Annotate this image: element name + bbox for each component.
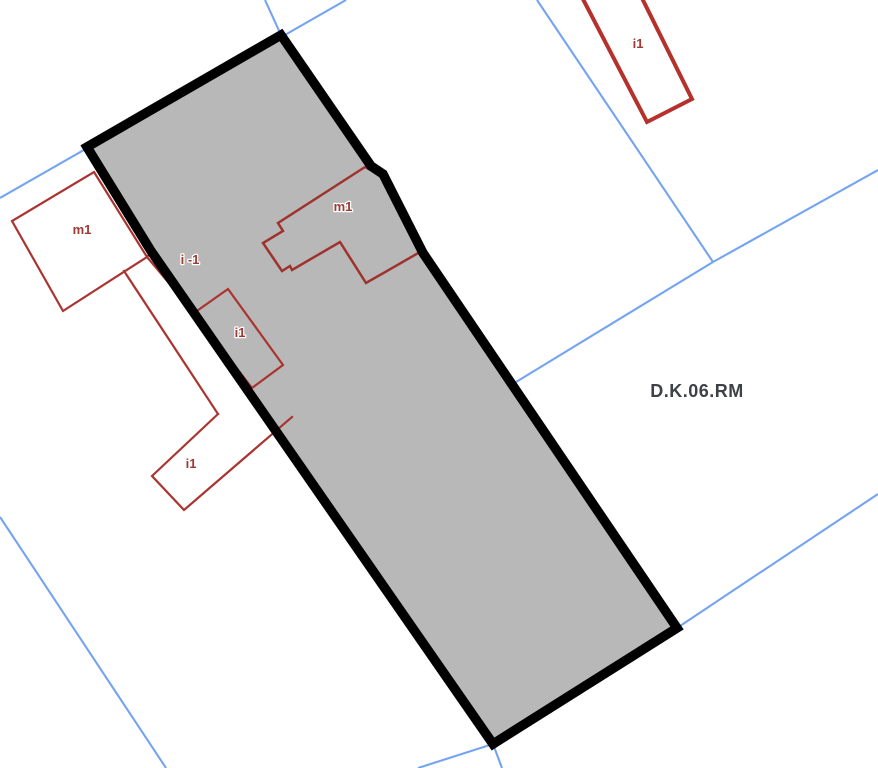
building-i1-northeast	[573, 0, 692, 122]
building-label: i1	[633, 36, 644, 51]
map-canvas[interactable]: m1i -1i1i1m1i1D.K.06.RM	[0, 0, 878, 768]
building-label: m1	[73, 222, 92, 237]
boundary-line-upper-right-a	[537, 0, 713, 262]
selected-parcel[interactable]	[87, 35, 677, 744]
zone-label: D.K.06.RM	[650, 381, 744, 401]
building-label: i1	[235, 325, 246, 340]
boundary-line-lower-right	[677, 494, 878, 628]
building-label: i1	[186, 456, 197, 471]
selected-parcel-fill-layer	[87, 35, 677, 744]
boundary-line-upper-right-b	[713, 170, 878, 262]
map-viewport[interactable]: m1i -1i1i1m1i1D.K.06.RM	[0, 0, 878, 768]
boundary-line-to-parcel	[516, 262, 713, 382]
boundary-line-top-corner	[265, 0, 281, 35]
building-label: i -1	[181, 252, 200, 267]
building-label: m1	[334, 199, 353, 214]
boundary-line-lower-left	[0, 517, 166, 768]
boundary-line-bottom-a	[418, 744, 493, 768]
